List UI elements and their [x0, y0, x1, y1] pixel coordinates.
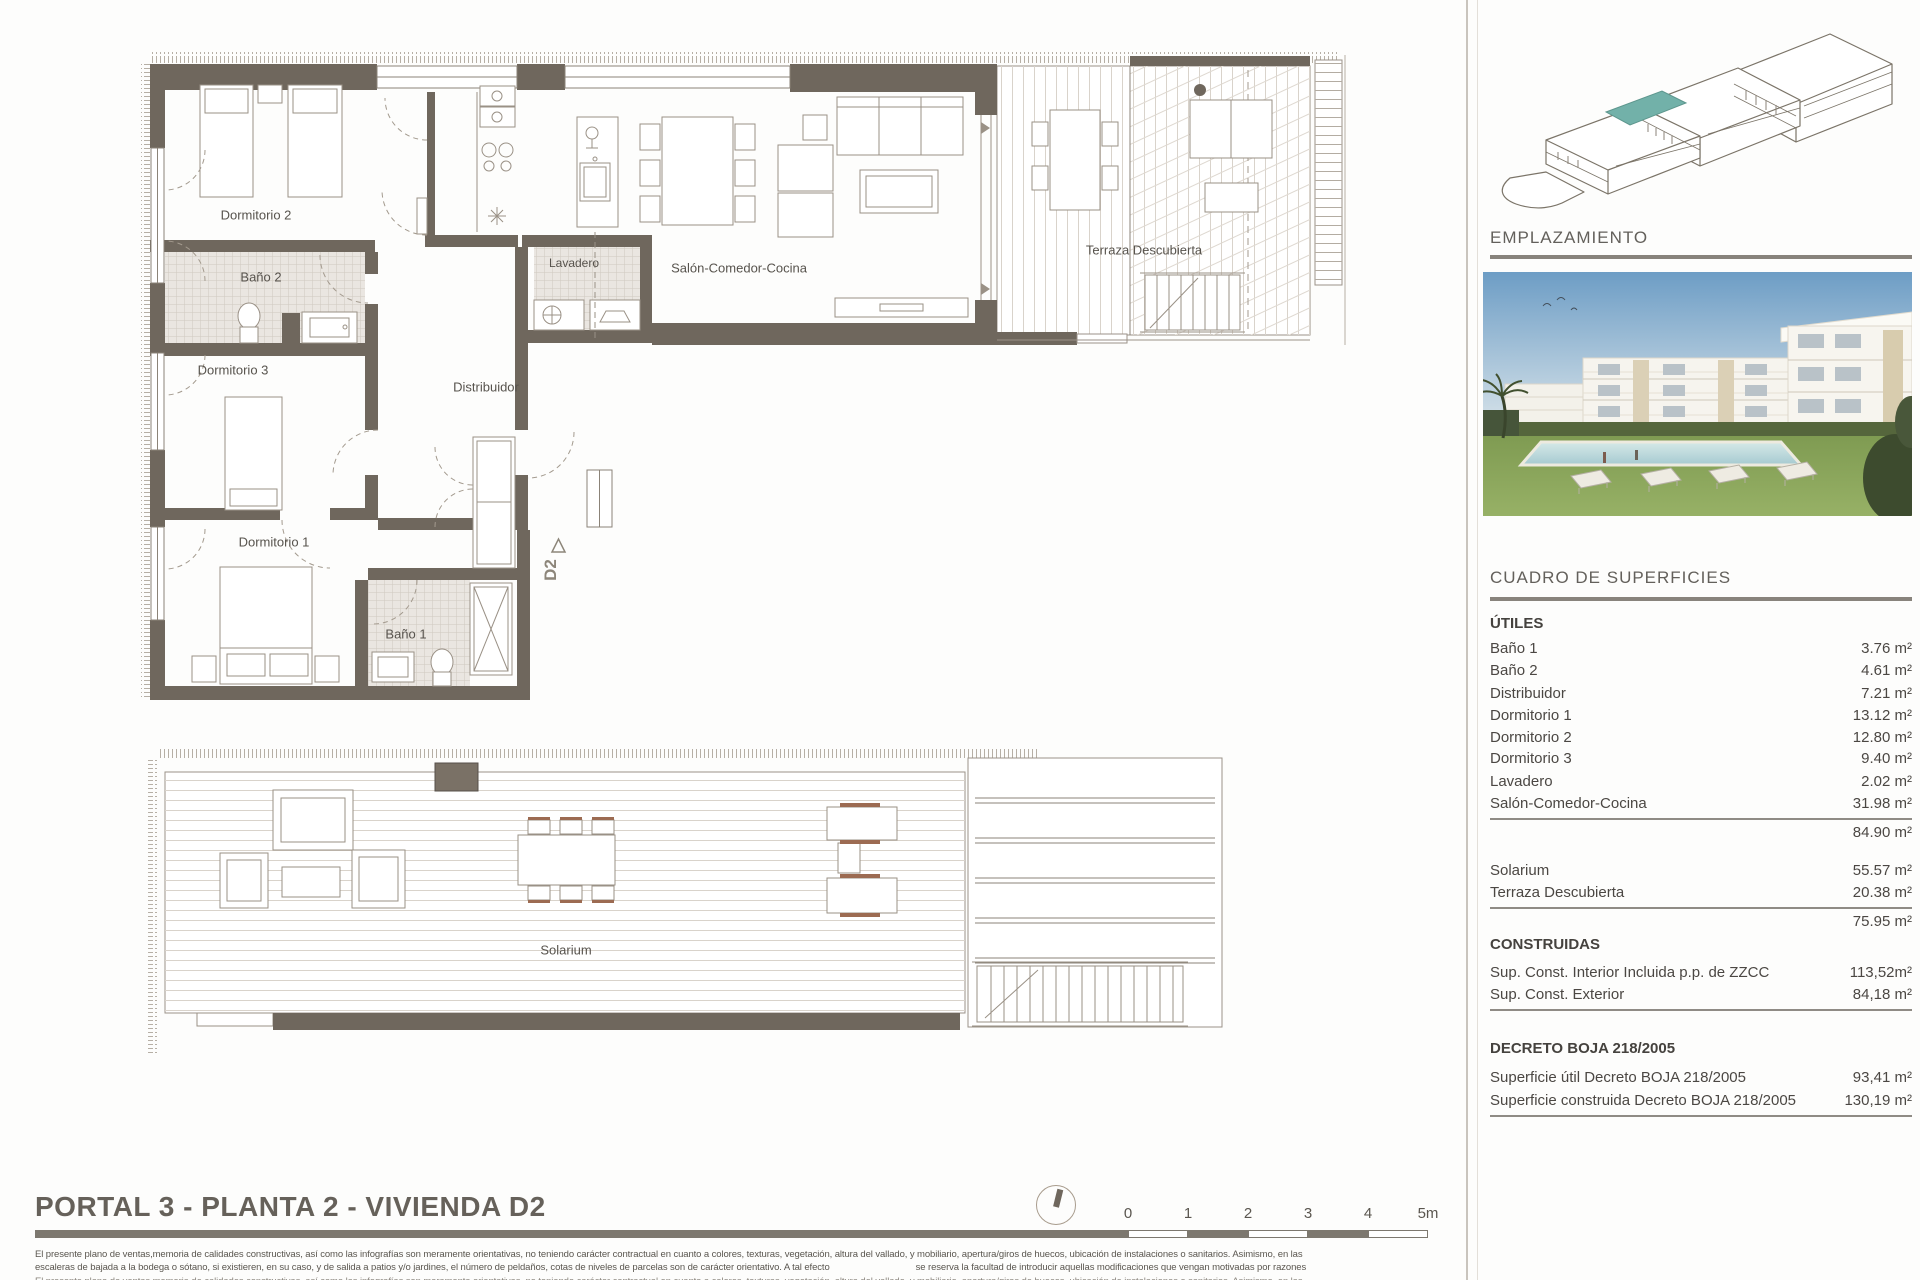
construidas-heading: CONSTRUIDAS [1490, 936, 1600, 953]
room-label-dormitorio-1: Dormitorio 1 [239, 535, 310, 550]
table-separator [1490, 818, 1912, 820]
scale-bar-segment [1128, 1230, 1188, 1238]
scale-bar-segment [1308, 1230, 1368, 1238]
surface-row: Dormitorio 39.40 m² [1490, 750, 1912, 767]
location-render-photo [1483, 272, 1912, 516]
utiles-total: 84.90 m² [1490, 824, 1912, 841]
scale-label-5m: 5m [1418, 1205, 1439, 1222]
utiles-heading: ÚTILES [1490, 615, 1543, 632]
title-rule [35, 1230, 1128, 1238]
disclaimer-line-2: escaleras de bajada a la bodega o sótano… [35, 1262, 1437, 1273]
room-label-dormitorio-2: Dormitorio 2 [221, 208, 292, 223]
floor-plan-drawing [140, 45, 1350, 1075]
surface-row: Superficie útil Decreto BOJA 218/200593,… [1490, 1069, 1912, 1086]
scale-bar-segment [1368, 1230, 1428, 1238]
room-label-dormitorio-3: Dormitorio 3 [198, 363, 269, 378]
table-separator [1490, 907, 1912, 909]
room-label-distribuidor: Distribuidor [453, 380, 519, 395]
exterior-total: 75.95 m² [1490, 913, 1912, 930]
surface-row: Dormitorio 212.80 m² [1490, 729, 1912, 746]
emplazamiento-rule [1490, 255, 1912, 259]
disclaimer-line-1: El presente plano de ventas,memoria de c… [35, 1249, 1437, 1260]
north-compass-icon [1036, 1185, 1076, 1225]
surface-row: Dormitorio 113.12 m² [1490, 707, 1912, 724]
room-label-bano-2: Baño 2 [240, 270, 281, 285]
emplazamiento-heading: EMPLAZAMIENTO [1490, 228, 1648, 248]
scale-label-4: 4 [1364, 1205, 1372, 1222]
room-label-lavadero: Lavadero [549, 256, 599, 270]
room-label-bano-1: Baño 1 [385, 627, 426, 642]
disclaimer-line-3-clipped: El presente plano de ventas,memoria de c… [35, 1276, 1437, 1280]
scale-label-1: 1 [1184, 1205, 1192, 1222]
surface-row: Baño 13.76 m² [1490, 640, 1912, 657]
surface-row: Solarium55.57 m² [1490, 862, 1912, 879]
cuadro-rule [1490, 597, 1912, 601]
surface-row: Superficie construida Decreto BOJA 218/2… [1490, 1092, 1912, 1109]
site-axonometric-drawing [1488, 6, 1912, 218]
room-label-terraza-descubierta: Terraza Descubierta [1086, 243, 1202, 258]
surface-row: Sup. Const. Exterior84,18 m² [1490, 986, 1912, 1003]
room-label-salon-comedor-cocina: Salón-Comedor-Cocina [671, 261, 807, 276]
floor-plan-sheet: Dormitorio 2 Baño 2 Dormitorio 3 Dormito… [0, 0, 1920, 1280]
scale-bar-segment [1188, 1230, 1248, 1238]
scale-label-2: 2 [1244, 1205, 1252, 1222]
table-separator [1490, 1009, 1912, 1011]
surface-row: Sup. Const. Interior Incluida p.p. de ZZ… [1490, 964, 1912, 981]
page-title: PORTAL 3 - PLANTA 2 - VIVIENDA D2 [35, 1191, 546, 1223]
unit-marker-d2: D2 [541, 559, 561, 581]
surface-row: Baño 24.61 m² [1490, 662, 1912, 679]
scale-label-0: 0 [1124, 1205, 1132, 1222]
room-label-solarium: Solarium [540, 943, 591, 958]
panel-divider-inner [1477, 0, 1478, 1280]
panel-divider [1466, 0, 1468, 1280]
table-separator [1490, 1115, 1912, 1117]
surface-row: Lavadero2.02 m² [1490, 773, 1912, 790]
decreto-heading: DECRETO BOJA 218/2005 [1490, 1040, 1675, 1057]
surface-row: Salón-Comedor-Cocina31.98 m² [1490, 795, 1912, 812]
surface-row: Distribuidor7.21 m² [1490, 685, 1912, 702]
cuadro-heading: CUADRO DE SUPERFICIES [1490, 568, 1731, 588]
scale-label-3: 3 [1304, 1205, 1312, 1222]
scale-bar-segment [1248, 1230, 1308, 1238]
surface-row: Terraza Descubierta20.38 m² [1490, 884, 1912, 901]
